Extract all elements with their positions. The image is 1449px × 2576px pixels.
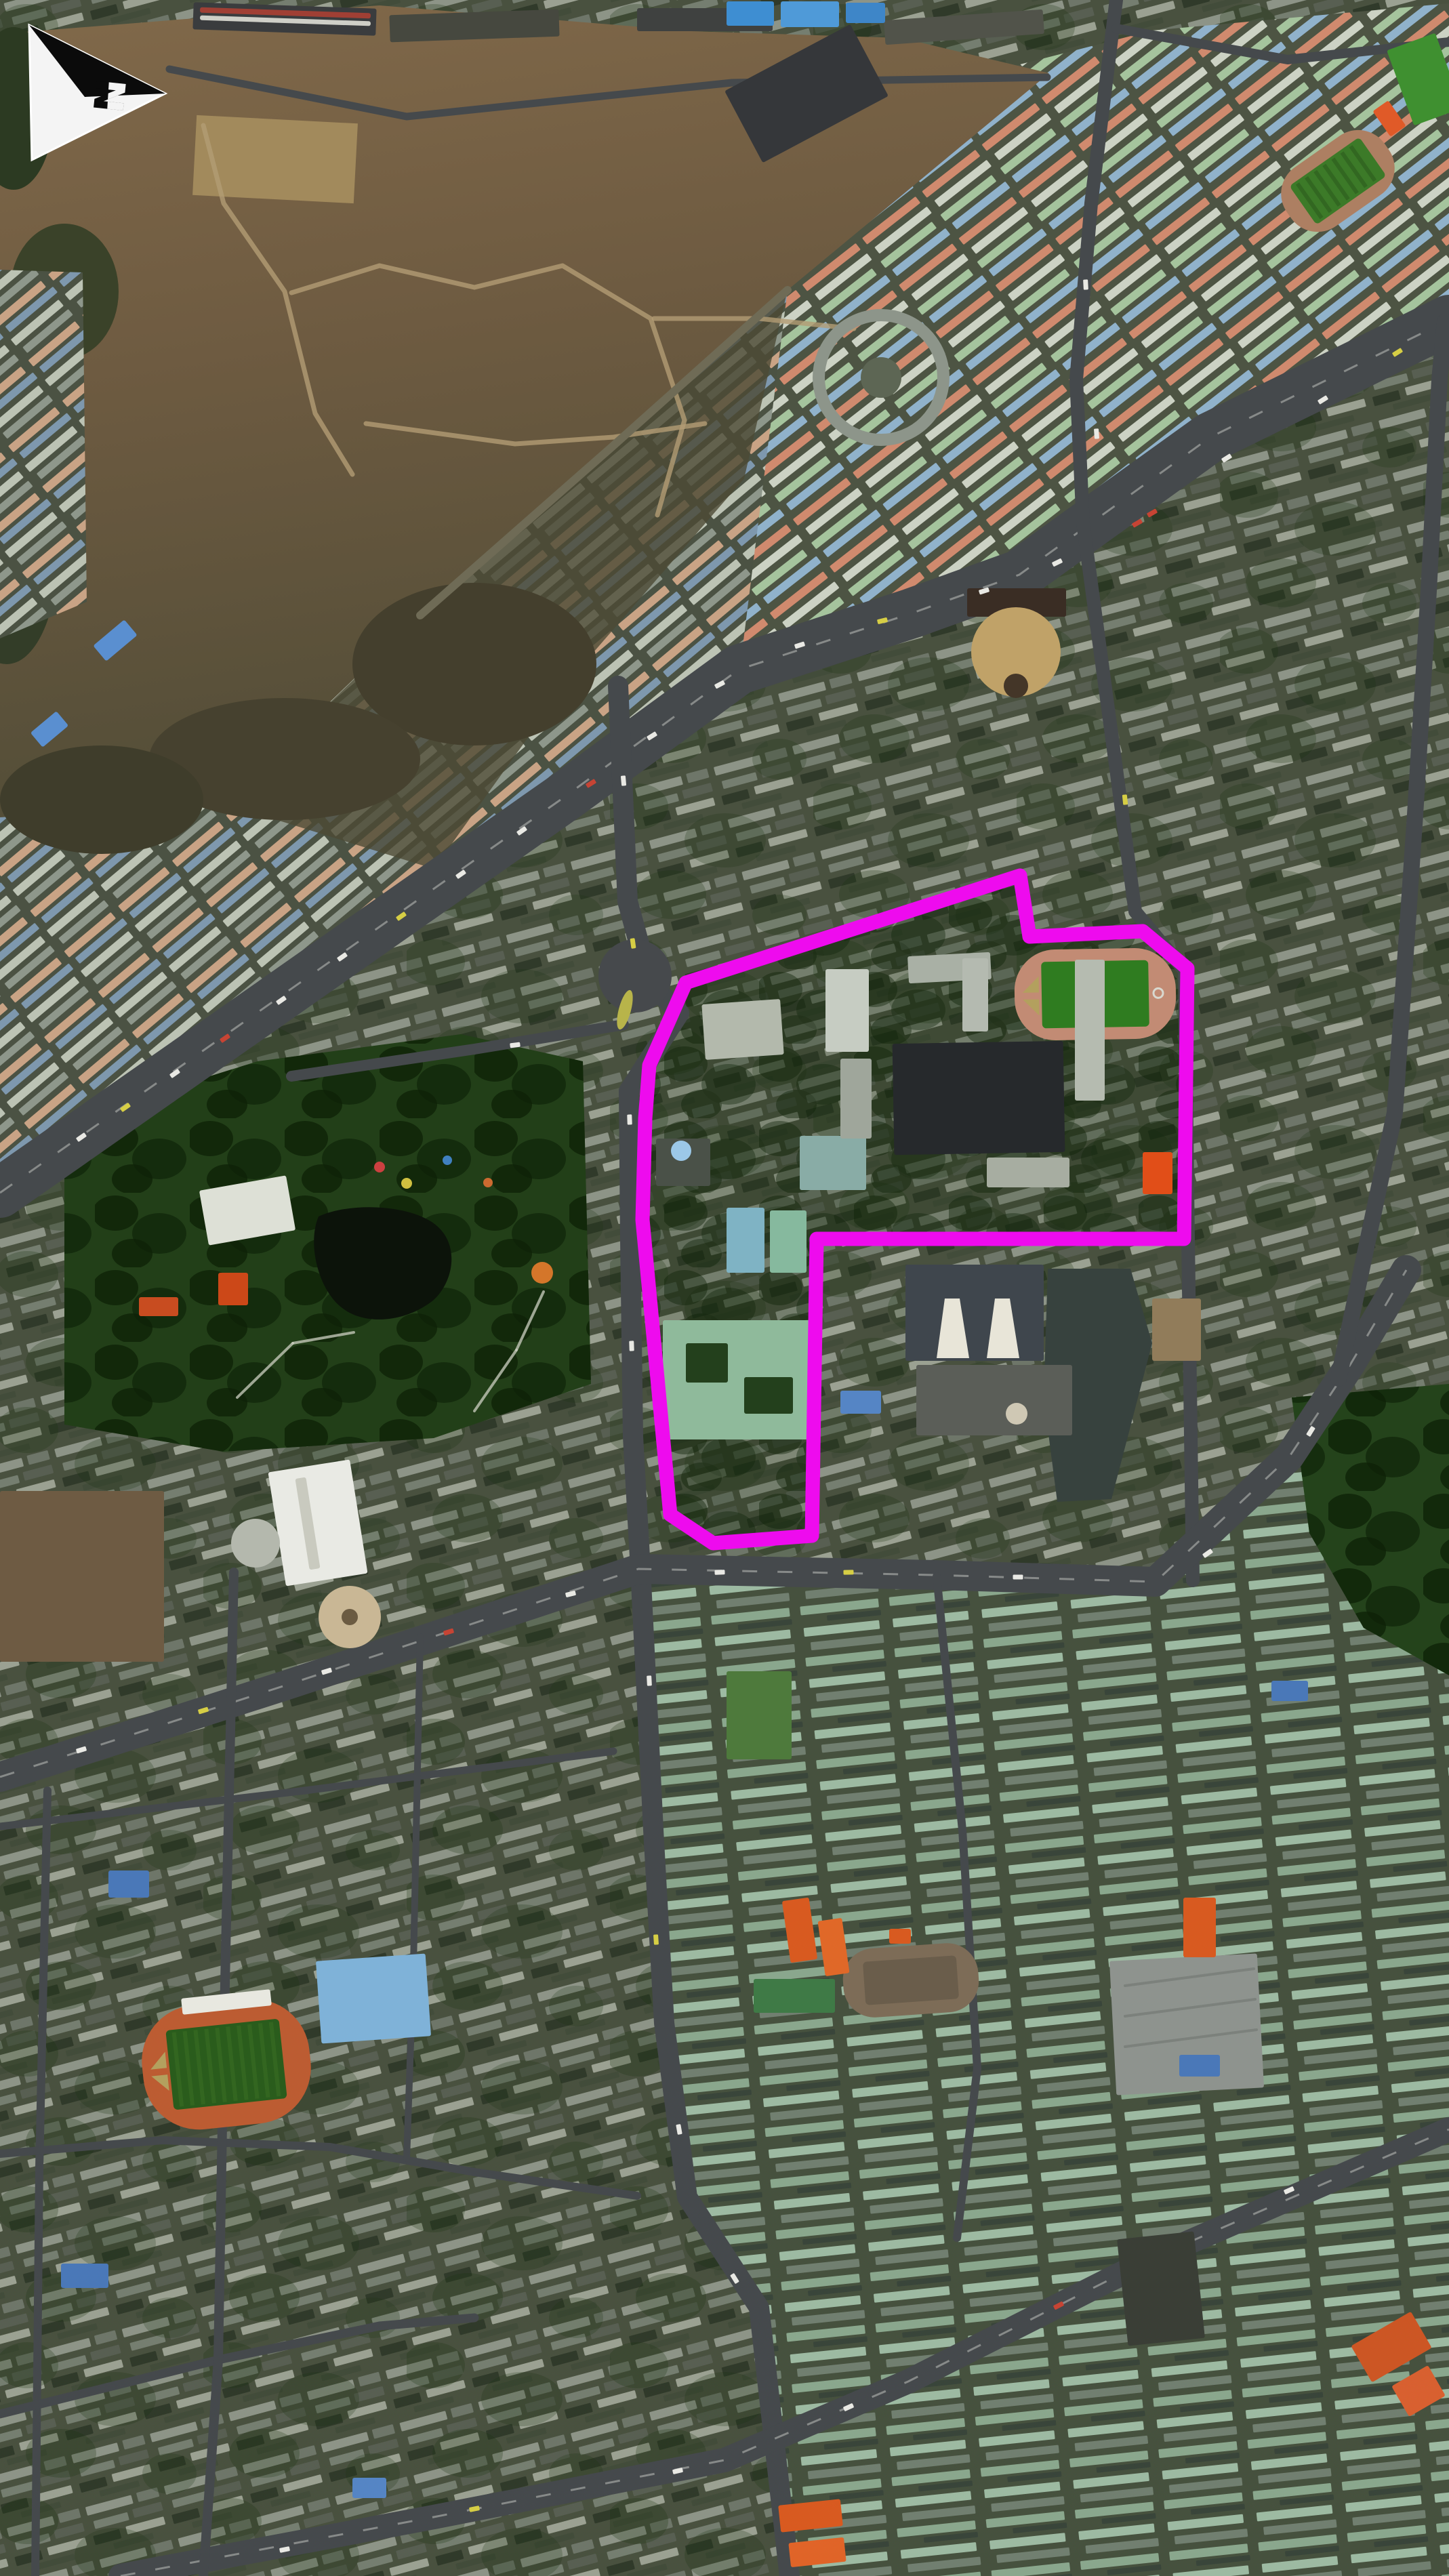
campus-building-6 (987, 1158, 1069, 1187)
campus-building-5 (1075, 960, 1105, 1101)
playground-dark (1117, 2231, 1205, 2346)
vehicle-dot (1094, 428, 1099, 438)
campus-building-4 (962, 958, 988, 1031)
orange-roof-j (889, 1929, 911, 1944)
orange-building-campus (1143, 1152, 1172, 1194)
satellite-map: NN (0, 0, 1449, 2576)
orange-roof-h (218, 1273, 248, 1305)
ride-yellow (401, 1178, 412, 1189)
parking-lot (916, 1365, 1072, 1435)
vehicle-dot (1083, 279, 1088, 289)
pool-2 (781, 1, 839, 27)
satellite-image: NN (0, 0, 1449, 2576)
plaza-center (342, 1609, 358, 1625)
construction-site-1 (0, 1491, 164, 1662)
courtyard-hole-1 (686, 1343, 728, 1383)
pool-1 (727, 1, 774, 26)
orange-roof-i (139, 1297, 178, 1316)
left-edge-city-strip (0, 270, 87, 638)
vehicle-dot (629, 1341, 634, 1351)
tennis-courts (754, 1979, 835, 2013)
round-pad (231, 1519, 280, 1568)
vehicle-dot (714, 1570, 724, 1575)
campus-building-1 (825, 969, 869, 1052)
crescent-center (861, 357, 901, 398)
campus-building-7 (701, 999, 783, 1060)
fan-plaza-notch (1004, 674, 1028, 698)
vehicle-dot (647, 1675, 652, 1685)
lawn-park (727, 1671, 792, 1759)
vehicle-dot (621, 775, 626, 786)
pair-blue-roof (727, 1208, 764, 1273)
vehicle-dot (653, 1934, 659, 1944)
fan-complex (905, 1265, 1044, 1361)
amusement-tent (531, 1262, 553, 1284)
roundabout (598, 939, 672, 1013)
track-dirt-southeast (841, 1941, 981, 2020)
courtyard-hole-2 (744, 1377, 793, 1414)
construction-site-2 (1152, 1299, 1201, 1361)
vehicle-dot (843, 1570, 853, 1574)
blue-roof-a (108, 1870, 149, 1898)
blue-roof-e (1271, 1681, 1308, 1701)
blue-roof-c (352, 2478, 386, 2498)
dark-roof-hall (893, 1041, 1065, 1155)
ride-blue (443, 1156, 452, 1165)
fountain (1006, 1403, 1027, 1425)
vehicle-dot (1013, 1575, 1023, 1580)
ride-red (374, 1162, 385, 1172)
teal-roof-hall (800, 1136, 866, 1190)
blue-roof-b (61, 2264, 108, 2288)
dome-building (671, 1141, 691, 1161)
scrub-patch (0, 745, 203, 854)
dirt-field (192, 115, 358, 203)
ride-orange (483, 1178, 493, 1187)
pool-hall-southwest (316, 1953, 431, 2043)
blue-roof-h (1179, 2055, 1220, 2077)
vehicle-dot (627, 1114, 632, 1124)
pool-3 (846, 3, 885, 23)
blue-roof-d (840, 1391, 881, 1414)
pair-green-roof (770, 1210, 807, 1273)
orange-roof-c (1183, 1898, 1216, 1957)
campus-building-3 (840, 1059, 872, 1139)
